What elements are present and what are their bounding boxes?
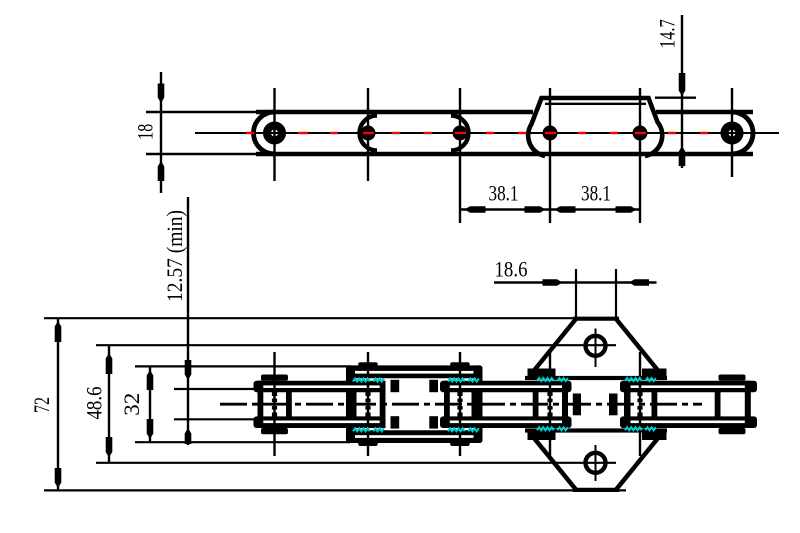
svg-text:48.6: 48.6 [82,387,107,420]
svg-text:38.1: 38.1 [581,181,611,206]
svg-text:32: 32 [119,393,144,416]
svg-text:18: 18 [133,124,158,140]
svg-text:12.57 (min): 12.57 (min) [162,210,187,302]
svg-text:38.1: 38.1 [489,181,519,206]
svg-text:14.7: 14.7 [655,19,680,48]
svg-text:18.6: 18.6 [495,257,528,282]
svg-text:72: 72 [29,397,54,413]
